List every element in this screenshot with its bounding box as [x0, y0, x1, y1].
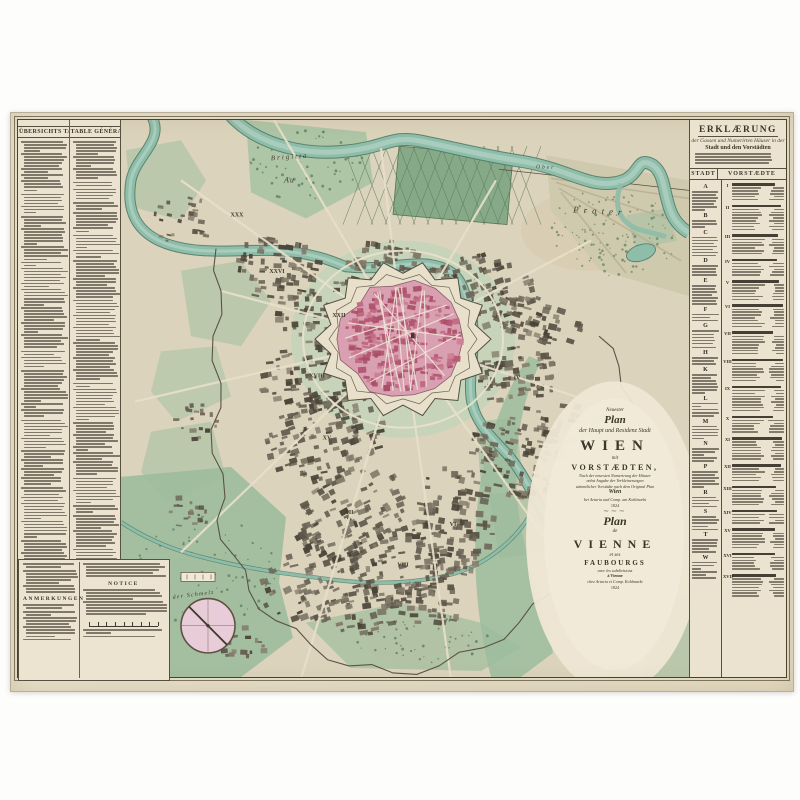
vorstadt-section-numeral: XV — [723, 527, 732, 549]
cartouche-year-de: 1824 — [554, 503, 675, 508]
cartouche-sub2: nebst Angabe der Verkleinerungen — [554, 478, 675, 483]
cartouche-faubourgs: FAUBOURGS — [549, 559, 681, 568]
vorstadt-section-numeral: XIII — [723, 485, 732, 507]
district-numeral: XV — [323, 436, 332, 442]
cartouche-publisher-fr: chez Artaria et Comp. Kohlmarkt — [554, 579, 675, 584]
stadt-section-letter: T — [692, 532, 719, 538]
stadt-section-letter: E — [692, 278, 719, 284]
map-label-au: Au — [283, 175, 295, 184]
stadt-section-letter: A — [692, 184, 719, 190]
vorstadt-section: IX — [723, 385, 784, 413]
vorstadt-section-numeral: VIII — [723, 358, 732, 383]
vorstadt-section-numeral: XII — [723, 463, 732, 482]
stadt-section-letter: R — [692, 490, 719, 496]
cartouche-plan-de: Plan — [549, 414, 681, 428]
district-numeral: VIII — [397, 562, 409, 568]
engraved-border-frame: ÜBERSICHTS TABELLE TABLE GÉNÉRALE Brigit… — [17, 119, 787, 678]
vienna-map: BrigittaAuOberPraterauf der SchmelzIIVVI… — [121, 120, 689, 677]
vorstadt-section-numeral: V — [723, 279, 732, 301]
cartouche-publisher-de: bei Artaria und Comp. am Kohlmarkt — [554, 497, 675, 502]
cartouche-der-haupt: der Haupt und Residenz Stadt — [549, 428, 681, 436]
vorstadt-section: IV — [723, 258, 784, 277]
district-numeral: IV — [514, 375, 521, 381]
cartouche-plan-fr: Plan — [549, 514, 681, 529]
vorstadt-section: XIV — [723, 509, 784, 526]
vorstadt-section: XIII — [723, 485, 784, 507]
vorstaedte-column-header: VORSTÆDTE — [718, 169, 786, 179]
vorstadt-section-numeral: XI — [723, 436, 732, 461]
map-label-ober: Ober — [536, 164, 555, 171]
stadt-section-letter: C — [692, 230, 719, 236]
stadt-section-letter: B — [692, 213, 719, 219]
stadt-section-letter: G — [692, 323, 719, 329]
table-generale-header: TABLE GÉNÉRALE — [70, 126, 121, 138]
stadt-section-letter: K — [692, 367, 719, 373]
uebersichts-tabelle-header: ÜBERSICHTS TABELLE — [18, 126, 69, 138]
notice-header: NOTICE — [83, 581, 164, 587]
title-cartouche: Neuester Plan der Haupt und Residenz Sta… — [549, 408, 681, 590]
stadt-section-letter: W — [692, 555, 719, 561]
vorstadt-section-numeral: I — [723, 182, 732, 201]
vorstadt-section-numeral: VI — [723, 303, 732, 328]
stadt-index-column: ABCDEFGHKLMNPRSTW — [690, 180, 722, 677]
stadt-section-letter: M — [692, 419, 719, 425]
vorstadt-section: III — [723, 233, 784, 255]
erklaerung-subtitle-script: der Gassen und Numerirten Häuser in der — [690, 138, 786, 144]
vorstadt-section: I — [723, 182, 784, 201]
cartouche-wien-script: Wien — [549, 489, 681, 497]
photographed-map-sheet: ÜBERSICHTS TABELLE TABLE GÉNÉRALE Brigit… — [0, 0, 800, 800]
vorstadt-section: VII — [723, 330, 784, 355]
cartouche-a-vienne: à Vienne — [554, 574, 675, 579]
stadt-section-letter: N — [692, 441, 719, 447]
district-numeral: XVIII — [309, 373, 325, 379]
district-numeral: XII — [345, 510, 355, 516]
map-sheet-paper: ÜBERSICHTS TABELLE TABLE GÉNÉRALE Brigit… — [10, 112, 794, 692]
stadt-section-letter: P — [692, 464, 719, 470]
vorstadt-section: XV — [723, 527, 784, 549]
cartouche-sub1: Nach der neuesten Numerirung der Häuser — [554, 473, 675, 478]
cartouche-vienne-title: VIENNE — [549, 537, 681, 552]
vorstadt-section: V — [723, 279, 784, 301]
cartouche-year-fr: 1824 — [554, 585, 675, 590]
notice-column: NOTICE — [80, 562, 167, 678]
district-numeral: XXII — [332, 313, 346, 319]
scale-bar — [89, 619, 158, 627]
vorstadt-section: XII — [723, 463, 784, 482]
district-numeral: XXX — [231, 213, 245, 219]
anmerkungen-column: ANMERKUNGEN — [21, 562, 80, 678]
notes-inset-box: ANMERKUNGEN NOTICE — [18, 559, 170, 681]
vorstadt-section-numeral: IV — [723, 258, 732, 277]
vorstadt-section: XVI — [723, 552, 784, 571]
stadt-section-letter: S — [692, 509, 719, 515]
vorstadt-section-numeral: VII — [723, 330, 732, 355]
cartouche-vorstaedten: VORSTÆDTEN, — [549, 463, 681, 473]
vorstadt-section: XI — [723, 436, 784, 461]
vorstadt-section-numeral: XVI — [723, 552, 732, 571]
district-numeral: XXVI — [269, 269, 285, 275]
index-table-header: STADT VORSTÆDTE — [690, 168, 786, 180]
vorstadt-section-numeral: XVII — [723, 573, 732, 598]
anmerkungen-header: ANMERKUNGEN — [23, 596, 77, 602]
erklaerung-title: ERKLÆRUNG — [690, 125, 786, 135]
vorstadt-section: XVII — [723, 573, 784, 598]
cartouche-de: de — [549, 529, 681, 535]
vienna-map-engraving: BrigittaAuOberPraterauf der SchmelzIIVVI… — [121, 120, 689, 677]
vorstadt-section: VIII — [723, 358, 784, 383]
cartouche-sub3: sämmtlicher Vorstädte nach dem Original … — [554, 484, 675, 489]
stadt-column-header: STADT — [690, 169, 718, 179]
stadt-section-letter: H — [692, 350, 719, 356]
district-numeral: VI — [450, 522, 457, 528]
vorstadt-section-numeral: XIV — [723, 509, 732, 526]
street-index-panel: ERKLÆRUNG der Gassen und Numerirten Häus… — [689, 120, 786, 677]
title-rule — [698, 136, 778, 137]
vorstadt-section: VI — [723, 303, 784, 328]
stadt-section-letter: D — [692, 258, 719, 264]
vorstaedte-index-column: IIIIIIIVVVIVIIVIIIIXXXIXIIXIIIXIVXVXVIXV… — [722, 180, 786, 677]
vorstadt-section: II — [723, 204, 784, 232]
stadt-section-letter: L — [692, 396, 719, 402]
vorstadt-section-numeral: IX — [723, 385, 732, 413]
vorstadt-section-numeral: II — [723, 204, 732, 232]
vorstadt-section: X — [723, 415, 784, 434]
stadt-section-letter: F — [692, 307, 719, 313]
cartouche-wien-title: WIEN — [549, 437, 681, 456]
vorstadt-section-numeral: X — [723, 415, 732, 434]
vorstadt-section-numeral: III — [723, 233, 732, 255]
index-intro-note — [690, 151, 786, 166]
